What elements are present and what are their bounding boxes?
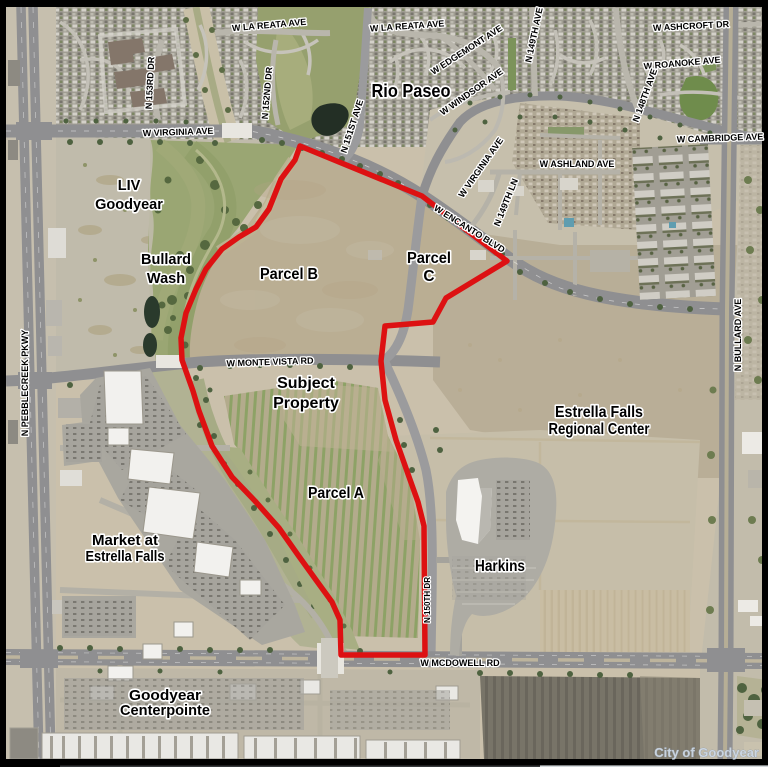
svg-text:Rio Paseo: Rio Paseo — [372, 81, 451, 101]
svg-text:Goodyear: Goodyear — [95, 197, 163, 213]
svg-text:Parcel B: Parcel B — [260, 266, 318, 283]
svg-text:N 150TH DR: N 150TH DR — [423, 577, 432, 623]
svg-text:C: C — [423, 268, 434, 285]
svg-text:City of Goodyear: City of Goodyear — [654, 745, 759, 760]
svg-text:Bullard: Bullard — [141, 252, 191, 268]
svg-text:Parcel: Parcel — [407, 250, 451, 267]
svg-text:Wash: Wash — [147, 271, 185, 287]
svg-text:Estrella Falls: Estrella Falls — [555, 404, 643, 421]
svg-text:N BULLARD AVE: N BULLARD AVE — [733, 299, 743, 372]
svg-text:Regional Center: Regional Center — [549, 421, 650, 438]
svg-text:LIV: LIV — [118, 178, 141, 194]
svg-text:Market at: Market at — [92, 532, 158, 549]
svg-text:W MCDOWELL RD: W MCDOWELL RD — [420, 658, 500, 668]
svg-text:N PEBBLECREEK PKWY: N PEBBLECREEK PKWY — [20, 330, 30, 437]
svg-text:W ASHLAND AVE: W ASHLAND AVE — [540, 159, 615, 169]
svg-text:Subject: Subject — [277, 375, 335, 392]
svg-text:Estrella Falls: Estrella Falls — [86, 548, 165, 565]
svg-text:Centerpointe: Centerpointe — [120, 702, 210, 719]
svg-text:Property: Property — [273, 395, 339, 412]
svg-text:Parcel A: Parcel A — [308, 485, 364, 502]
svg-text:Harkins: Harkins — [475, 558, 525, 575]
